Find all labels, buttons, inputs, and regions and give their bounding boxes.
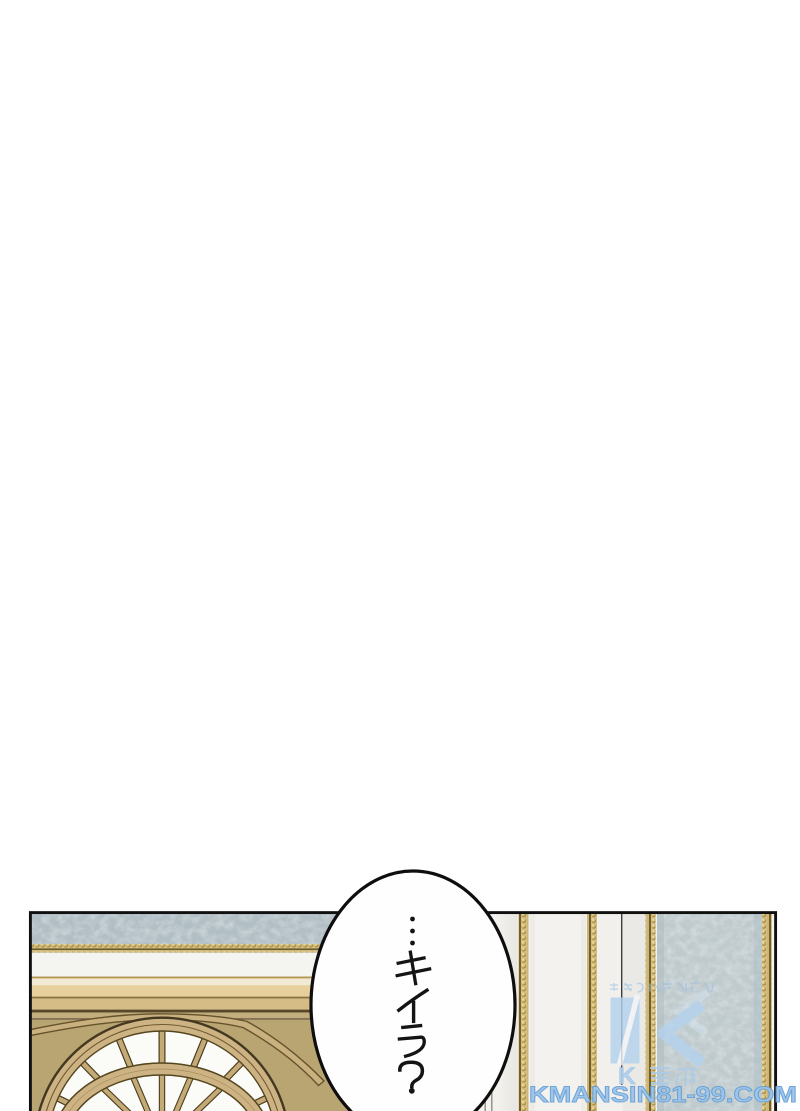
svg-text:KMANSIN81-99.COM: KMANSIN81-99.COM xyxy=(529,1082,797,1107)
